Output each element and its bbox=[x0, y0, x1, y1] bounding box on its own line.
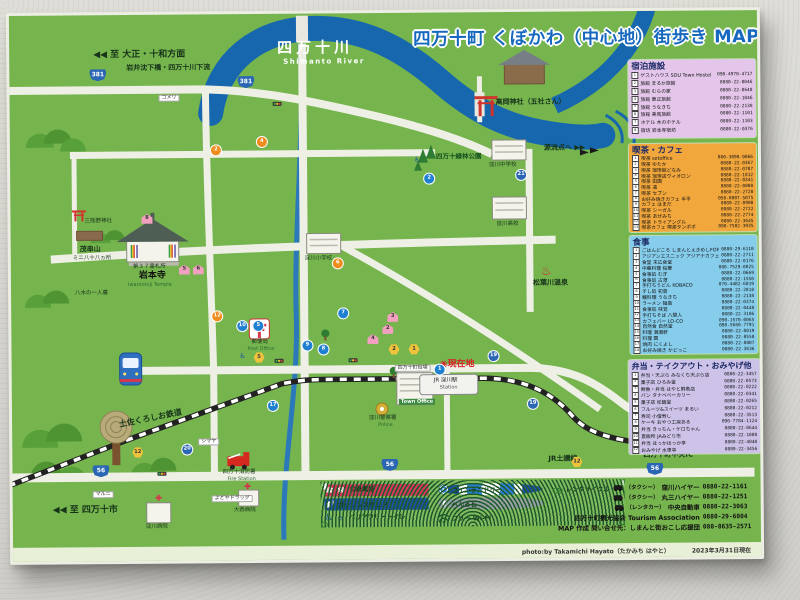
row-phone: 0880-29-6110 bbox=[721, 248, 754, 253]
map-label: 窪川高校 bbox=[497, 222, 519, 228]
map-badge: 21 bbox=[516, 170, 526, 180]
map-badge: 6 bbox=[333, 258, 343, 268]
row-phone: 0880-22-2138 bbox=[722, 294, 755, 299]
hills-top-left bbox=[26, 129, 86, 151]
map-badge: 7 bbox=[338, 308, 348, 318]
row-name: お好み焼き かどっこ bbox=[642, 346, 720, 354]
panel-bento-title: 弁当・テイクアウト・おみやげ他 bbox=[632, 361, 757, 372]
map-label: ♿ bbox=[414, 157, 420, 164]
row-phone: 0880-22-1101 bbox=[720, 111, 753, 116]
fire-truck-icon bbox=[227, 452, 249, 470]
row-name: 旅館 美馬旅館 bbox=[641, 111, 719, 119]
contact-phone: 0880-29-6004 bbox=[703, 513, 759, 520]
row-name: おみやげ 水車亭 bbox=[641, 446, 723, 454]
panel-lodging-list: 1 ゲストハウス SOU Town Hostel 090-4970-4717 2… bbox=[631, 71, 752, 134]
contact-name: 中央自動車 bbox=[668, 502, 700, 511]
row-phone: 090-1570-0065 bbox=[719, 318, 754, 323]
row-number: 7 bbox=[632, 119, 639, 126]
directory-row: 12 おみやげ 水車亭 0880-22-3456 bbox=[632, 446, 757, 454]
map-badge: 19 bbox=[528, 399, 538, 409]
panel-cafe-list: 1 喫茶 sotoffice 080-3098-9066 2 喫茶 ゆたか 08… bbox=[632, 155, 754, 231]
map-badge: 5 bbox=[253, 321, 263, 331]
map-title: 四万十町 くぼかわ（中心地）街歩き MAP bbox=[413, 23, 760, 51]
row-number: 1 bbox=[631, 72, 638, 79]
row-phone: 0880-22-2711 bbox=[721, 253, 754, 258]
row-phone: 0880-22-3636 bbox=[722, 347, 755, 352]
row-phone: 080-3098-9066 bbox=[718, 155, 753, 160]
photo-wall-background: 四万十町 くぼかわ（中心地）街歩き MAP ◀◀ 至 大正・十和方面岩井沈下橋・… bbox=[0, 0, 800, 600]
row-name: ホテル 木のホテル bbox=[641, 119, 719, 127]
row-phone: 0880-22-3457 bbox=[724, 372, 757, 377]
panel-lodging: 宿泊施設 1 ゲストハウス SOU Town Hostel 090-4970-4… bbox=[628, 59, 756, 138]
map-label: 郵便局 bbox=[251, 340, 268, 346]
row-phone: 080-5660-7791 bbox=[719, 323, 754, 328]
legend-label: フリー Wi-Fi bbox=[452, 513, 491, 522]
directory-row: 8 宿坊 岩本寺宿坊 0880-22-0376 bbox=[632, 126, 753, 135]
map-badge: 19 bbox=[489, 351, 499, 361]
map-badge: 9 bbox=[302, 341, 312, 351]
contact-phone: 0880-22-1161 bbox=[703, 483, 759, 490]
photo-credit: photo:by Takamichi Hayato（たかみち はやと） bbox=[522, 545, 670, 555]
row-phone: 0880-22-0367 bbox=[721, 161, 754, 166]
contact-category: （タクシー） bbox=[626, 493, 659, 501]
map-label: ◉現在地 bbox=[440, 360, 475, 369]
row-phone: 0880-22-2722 bbox=[721, 207, 754, 212]
row-phone: 0880-22-0019 bbox=[722, 329, 755, 334]
contact-phone: 0880-22-3063 bbox=[703, 503, 759, 510]
map-badge: 8 bbox=[318, 344, 328, 354]
map-label: 窪川中学校 bbox=[489, 163, 517, 169]
row-phone: 070-4482-6019 bbox=[719, 283, 754, 288]
row-phone: 090-7582-3935 bbox=[718, 224, 753, 229]
row-phone: 0880-22-0980 bbox=[721, 201, 754, 206]
directory-row: 18 お好み焼き かどっこ 0880-22-3636 bbox=[633, 346, 754, 353]
row-phone: 0880-22-0707 bbox=[721, 167, 754, 172]
map-label: ♿ bbox=[240, 353, 246, 360]
map-badge: 2 bbox=[211, 145, 221, 155]
row-phone: 0880-22-2728 bbox=[721, 190, 754, 195]
row-phone: 0880-22-2810 bbox=[722, 288, 755, 293]
map-badge: 20 bbox=[182, 445, 192, 455]
row-phone: 0880-22-1008 bbox=[725, 433, 758, 438]
map-label: ミニ八十八ヵ所 bbox=[73, 256, 112, 262]
contact-category: （レンタカー） bbox=[626, 503, 665, 511]
contact-name: 窪川ハイヤー bbox=[662, 482, 700, 491]
row-phone: 0880-22-0374 bbox=[722, 300, 755, 305]
police-badge-icon bbox=[376, 403, 388, 415]
map-label: Police bbox=[378, 423, 393, 428]
map-label: 大西病院 bbox=[234, 508, 256, 514]
map-label: ◀◀ 至 大正・十和方面 bbox=[93, 51, 185, 61]
map-date: 2023年3月31日現在 bbox=[692, 545, 751, 554]
map-label: 岩本寺 bbox=[139, 272, 166, 281]
map-badge: 2 bbox=[424, 174, 434, 184]
car-icon bbox=[614, 495, 623, 500]
row-phone: 0880-22-0644 bbox=[725, 426, 758, 431]
row-phone: 0880-22-0341 bbox=[724, 392, 757, 397]
map-label: Post Office bbox=[247, 347, 274, 352]
panel-bento-list: 1 弁当・天ぷら みなくち天ぷら店 0880-22-3457 2 菓子店 ひろみ… bbox=[632, 371, 758, 454]
contact-name: MAP 作成 問い合せ先：しまんと街おこし応援団 bbox=[558, 522, 700, 532]
row-name: 宿坊 岩本寺宿坊 bbox=[641, 126, 719, 134]
map-label: 高岡神社（五社さん） bbox=[496, 99, 566, 107]
contact-name: 四万十町観光協会 Tourism Association bbox=[575, 512, 700, 522]
row-phone: 0880-22-0376 bbox=[720, 127, 753, 132]
row-phone: 0880-22-1103 bbox=[720, 119, 753, 124]
panel-cafe: 喫茶・カフェ 1 喫茶 sotoffice 080-3098-9066 2 喫茶… bbox=[629, 143, 757, 232]
panel-food: 食事 1 ごはんどころ しまんとえきめしFORM 0880-29-6110 2 … bbox=[630, 235, 758, 354]
map-label: シマヤ bbox=[198, 438, 219, 445]
row-name: 旅館 うなきち bbox=[641, 103, 719, 111]
map-label: ♨ bbox=[541, 265, 552, 277]
map-label: Shimanto River bbox=[283, 58, 365, 66]
row-phone: 0880-22-0080 bbox=[721, 184, 754, 189]
row-phone: 0880-22-4040 bbox=[725, 440, 758, 445]
map-sign-board: 四万十町 くぼかわ（中心地）街歩き MAP ◀◀ 至 大正・十和方面岩井沈下橋・… bbox=[6, 7, 764, 565]
row-number: 3 bbox=[631, 88, 638, 95]
map-label: 窪川警察署 bbox=[369, 416, 397, 422]
contact-info: （タクシー） 窪川ハイヤー 0880-22-1161 （タクシー） 丸三ハイヤー… bbox=[527, 481, 759, 533]
legend-icon bbox=[439, 513, 449, 523]
row-number: 6 bbox=[632, 111, 639, 118]
contact-name: 丸三ハイヤー bbox=[662, 492, 700, 501]
map-label: Iwamotoji Temple bbox=[128, 283, 172, 288]
row-phone: 0880-22-3186 bbox=[722, 312, 755, 317]
row-phone: 0880-22-2774 bbox=[721, 213, 754, 218]
row-phone: 0880-22-0046 bbox=[720, 80, 753, 85]
map-label: コメリ bbox=[158, 95, 179, 102]
map-label: 源流点へ ▶▶ bbox=[544, 144, 585, 151]
row-name: 旅館 むらの家 bbox=[640, 87, 718, 95]
contact-row: MAP 作成 問い合せ先：しまんと街おこし応援団 080-8635-2571 bbox=[527, 521, 759, 533]
row-phone: 0880-22-0448 bbox=[722, 306, 755, 311]
map-label: ◀◀ 至 四万十市 bbox=[53, 506, 118, 516]
hospital-kubokawa bbox=[147, 495, 171, 523]
row-phone: 0880-22-3456 bbox=[725, 447, 758, 452]
row-phone: 0880-22-0265 bbox=[724, 399, 757, 404]
row-number: 4 bbox=[632, 96, 639, 103]
map-label: 窪川病院 bbox=[146, 525, 168, 531]
map-badge: 1 bbox=[435, 365, 445, 375]
map-label: Station bbox=[440, 385, 458, 390]
row-phone: 0880-22-0669 bbox=[721, 271, 754, 276]
row-phone: 090-7784-1124 bbox=[722, 420, 757, 425]
map-label: よどやドラッグ bbox=[212, 495, 253, 502]
row-phone: 0880-22-0807 bbox=[722, 341, 755, 346]
row-phone: 0880-22-2138 bbox=[720, 104, 753, 109]
row-name: ゲストハウス SOU Town Hostel bbox=[640, 72, 715, 80]
map-label: 茂串山 bbox=[80, 246, 101, 253]
panel-bento: 弁当・テイクアウト・おみやげ他 1 弁当・天ぷら みなくち天ぷら店 0880-2… bbox=[629, 359, 761, 454]
map-label: 松葉川温泉 bbox=[533, 280, 568, 287]
row-number: 18 bbox=[633, 347, 640, 354]
row-phone: 0880-22-1046 bbox=[720, 96, 753, 101]
wooden-sign bbox=[77, 231, 103, 240]
row-phone: 0880-22-0558 bbox=[722, 335, 755, 340]
row-number: 13 bbox=[633, 224, 640, 231]
row-phone: 0880-22-0212 bbox=[724, 406, 757, 411]
row-phone: 0880-22-0648 bbox=[720, 88, 753, 93]
map-label: 四万十川 bbox=[277, 40, 353, 56]
row-phone: 0880-22-0176 bbox=[721, 259, 754, 264]
row-phone: 0880-22-0573 bbox=[724, 379, 757, 384]
row-number: 5 bbox=[632, 104, 639, 111]
train-icon bbox=[120, 353, 142, 385]
row-name: 旅館 まるか旅館 bbox=[640, 80, 718, 88]
row-number: 2 bbox=[631, 80, 638, 87]
map-label: マルニ bbox=[93, 491, 114, 498]
map-label: 八木の一人墓 bbox=[75, 291, 108, 297]
map-label: JR 窪川駅 bbox=[434, 378, 458, 384]
map-badge: 12 bbox=[212, 311, 222, 321]
map-label: 窪川小学校 bbox=[305, 256, 333, 262]
row-phone: 0880-22-0222 bbox=[724, 386, 757, 391]
iwamotoji-temple-icon bbox=[116, 213, 188, 267]
contact-category: （タクシー） bbox=[626, 483, 659, 491]
directory-row: 13 喫茶カフェ 喫茶タンポポ 090-7582-3935 bbox=[633, 224, 754, 231]
map-label: Town Office bbox=[399, 399, 435, 405]
row-phone: 090-4970-4717 bbox=[717, 72, 752, 77]
map-badge: 4 bbox=[257, 137, 267, 147]
contact-phone: 0880-22-1251 bbox=[703, 493, 759, 500]
map-badge: 17 bbox=[268, 401, 278, 411]
row-number: 12 bbox=[632, 447, 639, 454]
map-label: 四万十消防署 bbox=[222, 470, 255, 476]
map-area: 四万十町 くぼかわ（中心地）街歩き MAP ◀◀ 至 大正・十和方面岩井沈下橋・… bbox=[9, 10, 761, 548]
row-number: 8 bbox=[632, 127, 639, 134]
map-label: 四万十町役場 bbox=[395, 365, 431, 372]
map-label: 四万十緑林公園 bbox=[436, 153, 482, 160]
row-phone: 080-7529-8025 bbox=[719, 265, 754, 270]
map-label: Fire Station bbox=[227, 477, 255, 482]
map-badge: 10 bbox=[237, 321, 247, 331]
contact-phone: 080-8635-2571 bbox=[703, 523, 759, 530]
map-label: 三熊野神社 bbox=[84, 219, 112, 225]
hills-left-mid bbox=[25, 290, 69, 307]
car-icon bbox=[614, 505, 623, 510]
row-phone: 0880-22-0341 bbox=[721, 178, 754, 183]
car-icon bbox=[614, 485, 623, 490]
map-label: 岩井沈下橋・四万十川下流 bbox=[126, 64, 210, 72]
row-phone: 0880-22-3513 bbox=[724, 413, 757, 418]
row-name: 喫茶カフェ 喫茶タンポポ bbox=[642, 224, 717, 232]
row-name: 旅館 東正旅館 bbox=[641, 95, 719, 103]
map-label: 第３７番札所 bbox=[133, 265, 166, 271]
panel-food-list: 1 ごはんどころ しまんとえきめしFORM 0880-29-6110 2 アジア… bbox=[633, 247, 755, 353]
